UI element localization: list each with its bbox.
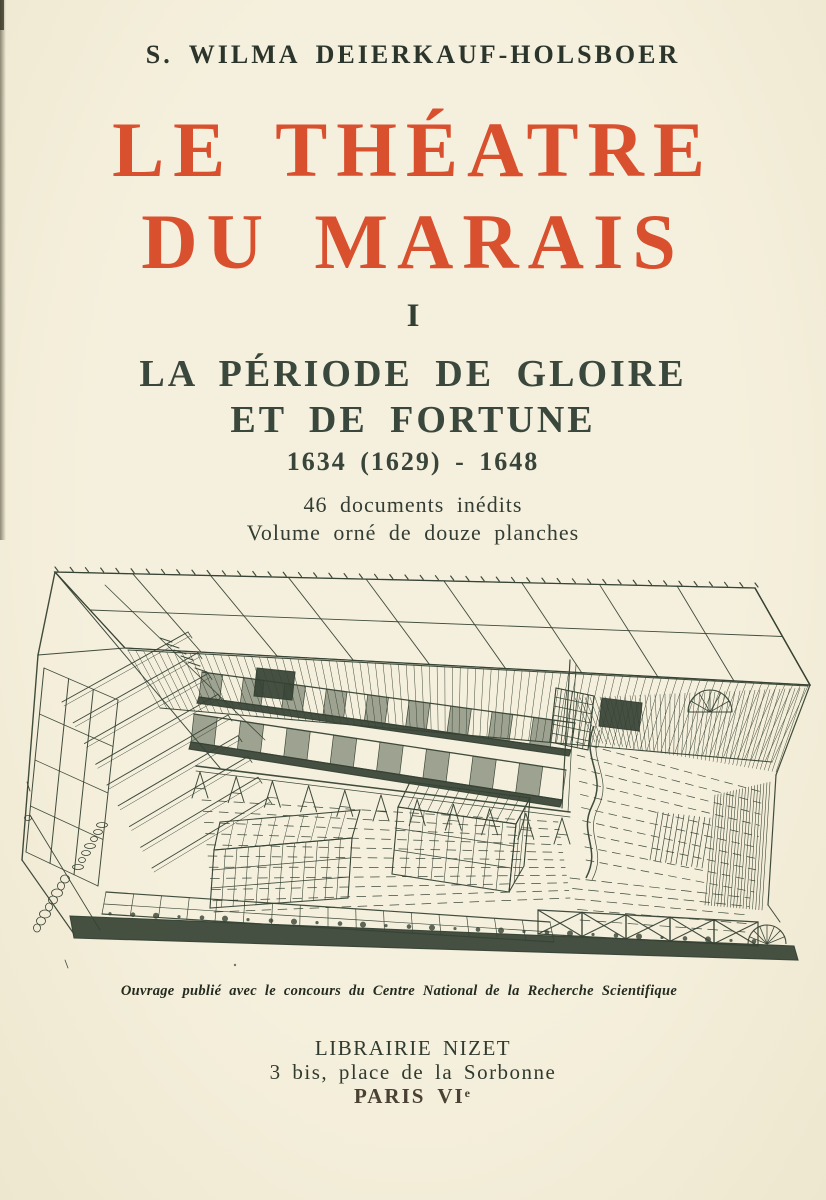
theatre-engraving-illustration [10,560,816,974]
scan-corner-mark [0,0,4,30]
book-title-line1: LE THÉATRE [0,104,826,196]
publisher-city-superscript: e [465,1086,472,1100]
engraving-caption: Ouvrage publié avec le concours du Centr… [0,983,812,1000]
dates-line: 1634 (1629) - 1648 [0,447,826,477]
book-title: LE THÉATRE DU MARAIS [0,104,826,288]
book-title-line2: DU MARAIS [0,196,826,288]
theatre-engraving [10,560,816,974]
author-line: S. WILMA DEIERKAUF-HOLSBOER [0,40,826,70]
book-title-page: { "page": { "author": "S. WILMA DEIERKAU… [0,0,826,1200]
publisher-name: LIBRAIRIE NIZET [0,1036,826,1061]
volume-numeral: I [0,298,826,335]
note-documents: 46 documents inédits [0,492,826,518]
publisher-city: PARIS VIe [0,1084,826,1109]
subtitle-line1: LA PÉRIODE DE GLOIRE [0,352,826,396]
publisher-city-text: PARIS VI [354,1084,465,1108]
publisher-address: 3 bis, place de la Sorbonne [0,1060,826,1085]
subtitle-line2: ET DE FORTUNE [0,398,826,442]
note-volume: Volume orné de douze planches [0,520,826,546]
